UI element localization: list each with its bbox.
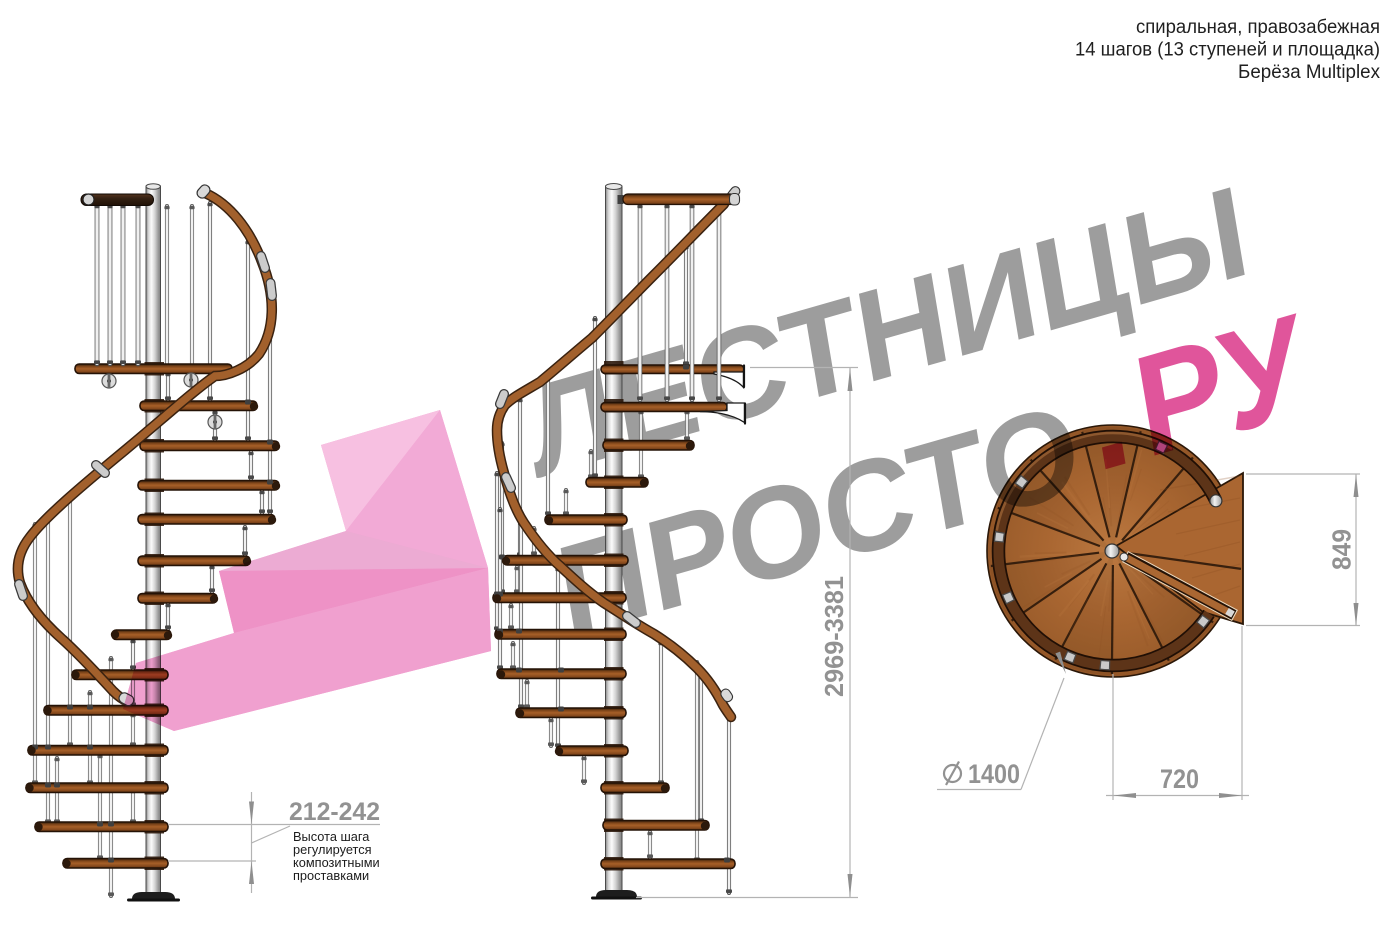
svg-text:720: 720 xyxy=(1160,764,1199,794)
svg-text:Берёза Multiplex: Берёза Multiplex xyxy=(1238,62,1380,83)
svg-text:14 шагов (13 ступеней и площад: 14 шагов (13 ступеней и площадка) xyxy=(1075,40,1380,61)
svg-text:Высота шагарегулируетсякомпози: Высота шагарегулируетсякомпозитнымипрост… xyxy=(293,829,380,883)
svg-text:1400: 1400 xyxy=(968,759,1020,789)
svg-text:2969-3381: 2969-3381 xyxy=(819,576,849,697)
svg-text:спиральная, правозабежная: спиральная, правозабежная xyxy=(1136,17,1380,38)
svg-text:849: 849 xyxy=(1327,529,1357,570)
svg-text:212-242: 212-242 xyxy=(289,798,380,826)
